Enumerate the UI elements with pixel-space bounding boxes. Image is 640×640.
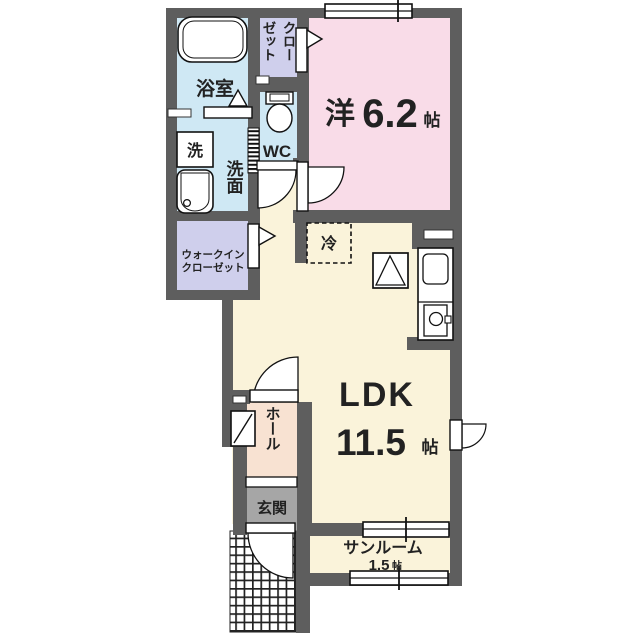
label-closet-col1: クロー — [281, 21, 296, 62]
window-hall-diagonal — [231, 411, 255, 446]
door-leaf-ldk-exterior — [450, 420, 462, 450]
label-ldk: LDK — [339, 376, 415, 414]
door-leaf-closet — [296, 28, 307, 72]
label-closet-col2: ゼット — [261, 21, 277, 62]
door-leaf-bedroom — [297, 162, 308, 211]
label-wic-line1: ウォークイン — [182, 249, 245, 261]
wall-break-closet — [256, 76, 269, 84]
threshold-hall-genkan — [246, 477, 297, 487]
wall-left — [166, 8, 177, 300]
sink-icon — [177, 170, 213, 213]
label-bedroom-prefix: 洋 — [325, 98, 355, 131]
door-arc-ldk-exterior — [462, 424, 486, 448]
door-leaf-entrance — [246, 523, 295, 533]
label-bathroom: 浴室 — [196, 77, 234, 100]
label-sunroom-unit: 帖 — [392, 559, 402, 572]
floor-plan: 浴室 洗 洗面 クロー ゼット WC 洋 6.2 帖 ウォークイン クローゼット… — [0, 0, 640, 640]
window-bedroom-top — [325, 0, 412, 22]
wall-break-hall — [233, 396, 246, 403]
door-leaf-hall-ldk — [250, 390, 298, 402]
label-ldk-unit: 帖 — [422, 437, 439, 457]
door-bathroom — [204, 107, 252, 118]
label-washer: 洗 — [187, 141, 203, 160]
label-sunroom-size: 1.5 — [369, 557, 390, 574]
kitchen-slit-window — [424, 230, 453, 239]
label-bedroom-unit: 帖 — [424, 110, 441, 130]
wall-break-left — [168, 109, 191, 117]
label-refrigerator: 冷 — [321, 234, 337, 253]
wall-washroom-wic — [166, 211, 260, 221]
wall-hall-right — [297, 402, 312, 535]
door-leaf-wic — [248, 224, 259, 268]
label-wc: WC — [263, 142, 291, 161]
label-bedroom-size: 6.2 — [362, 92, 418, 136]
bathtub-icon — [178, 17, 247, 62]
label-ldk-size: 11.5 — [336, 422, 406, 463]
label-hall: ホール — [264, 406, 281, 451]
label-wic-line2: クローゼット — [182, 261, 245, 274]
wall-fridge-stub — [295, 210, 307, 263]
label-washroom: 洗面 — [224, 159, 244, 195]
door-leaf-wc — [257, 161, 298, 170]
kitchen-sink-unit — [418, 248, 453, 340]
floor-plan-canvas: 浴室 洗 洗面 クロー ゼット WC 洋 6.2 帖 ウォークイン クローゼット… — [0, 0, 640, 640]
toilet-icon — [266, 92, 293, 132]
stove-icon — [373, 253, 408, 288]
wall-below-wic — [166, 290, 259, 300]
label-entrance: 玄関 — [257, 499, 287, 517]
label-sunroom: サンルーム — [343, 539, 423, 557]
